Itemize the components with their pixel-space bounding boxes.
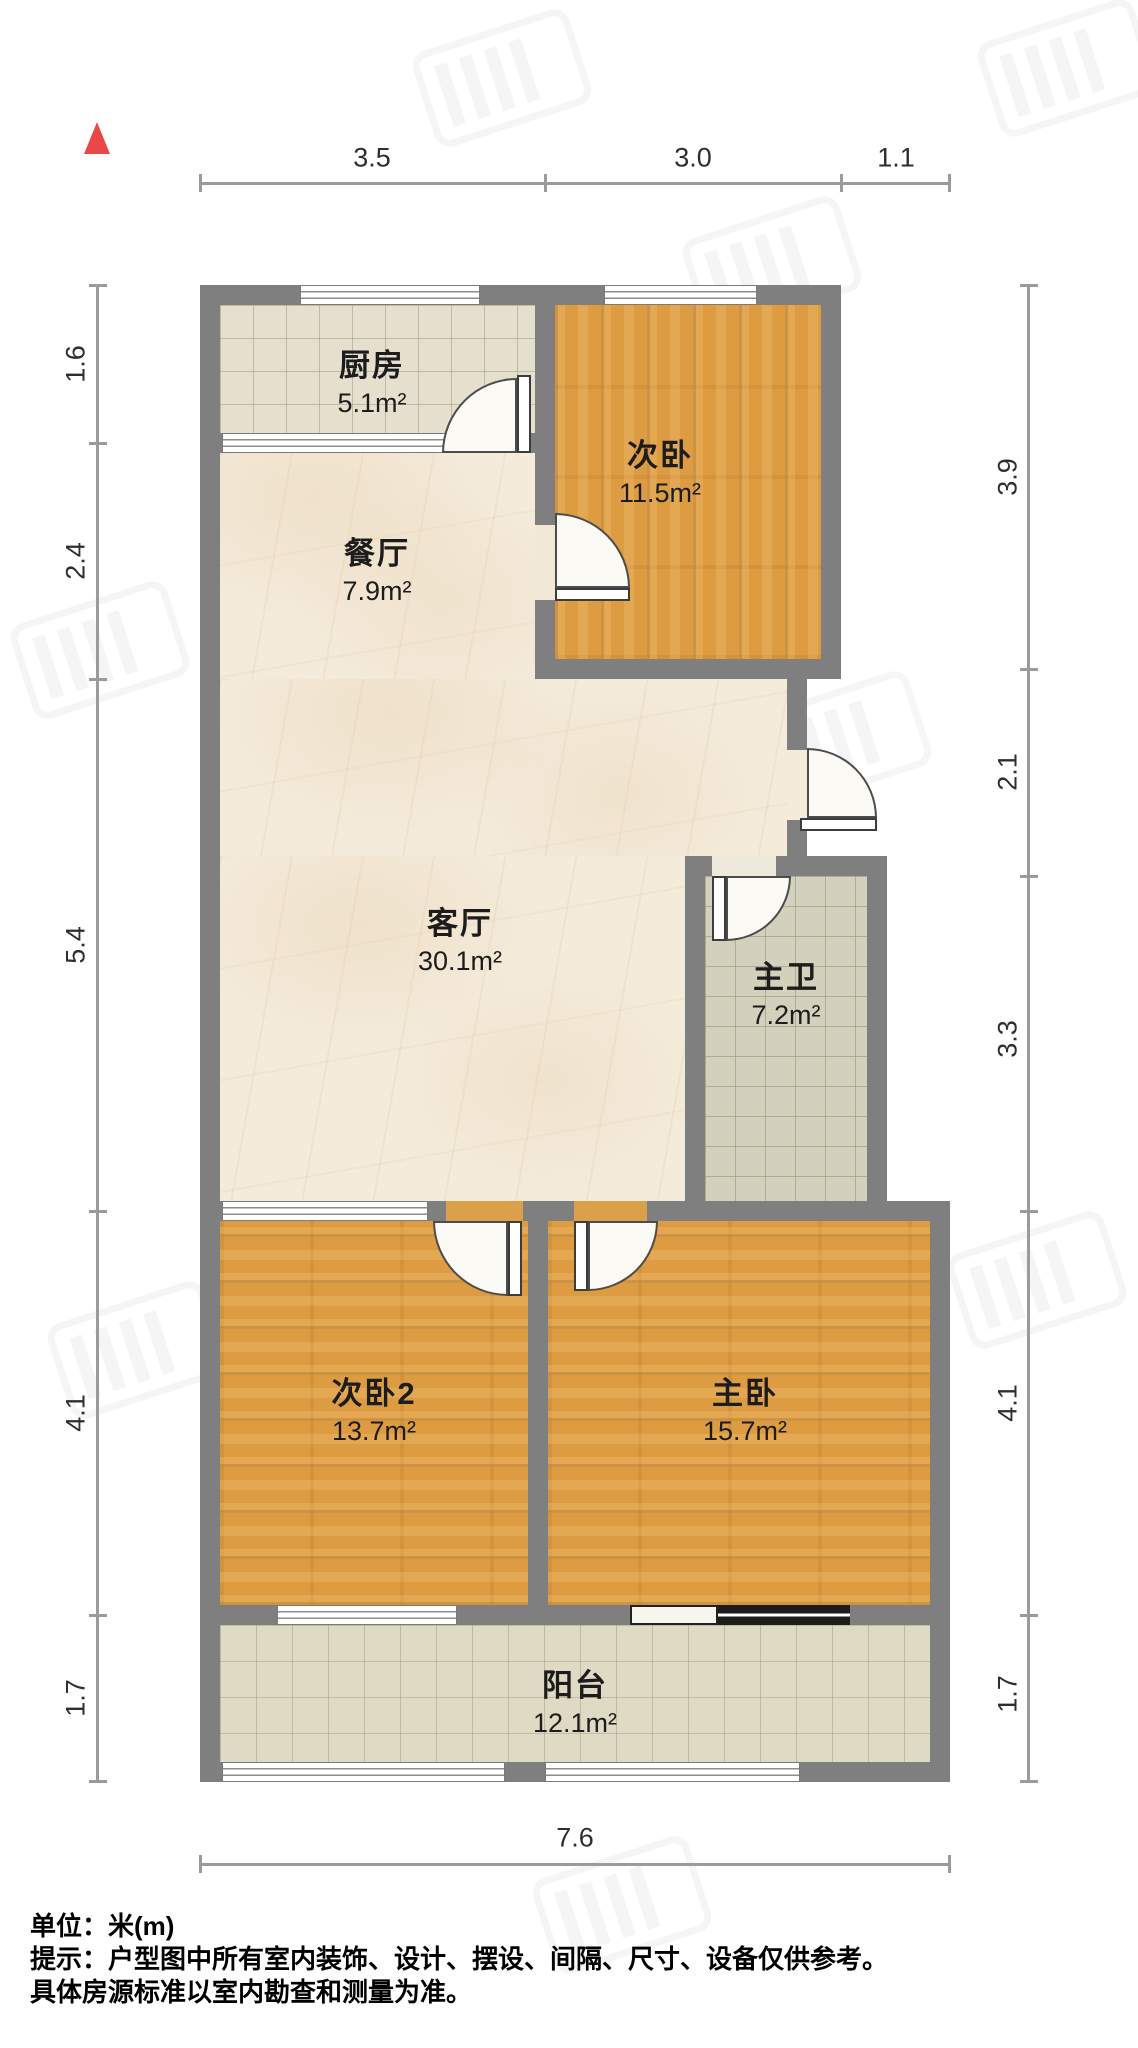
- dim-tick: [840, 174, 843, 192]
- living-floor-upper: [220, 679, 787, 856]
- dim-left-1: 1.6: [61, 345, 92, 383]
- dining-name: 餐厅: [342, 528, 411, 573]
- dining-area: 7.9m²: [342, 576, 411, 607]
- wall-bedroom-divider: [528, 1221, 548, 1605]
- room-label-bedroom3: 次卧2 13.7m²: [331, 1368, 416, 1447]
- dim-line-top: [200, 182, 950, 185]
- master-name: 主卧: [703, 1368, 787, 1413]
- bedroom3-door-leaf: [508, 1221, 522, 1296]
- opening-entrance: [787, 750, 807, 820]
- dim-left-5: 1.7: [61, 1679, 92, 1717]
- dim-tick: [1020, 1210, 1038, 1213]
- dim-tick: [199, 174, 202, 192]
- watermark-logo: [944, 1207, 1131, 1353]
- dim-right-1: 3.9: [993, 458, 1024, 496]
- bedroom3-area: 13.7m²: [331, 1416, 416, 1447]
- dim-left-4: 4.1: [61, 1394, 92, 1432]
- window-kitchen-top: [300, 285, 480, 305]
- dim-left-3: 5.4: [61, 926, 92, 964]
- window-living-partition: [222, 1201, 428, 1221]
- window-balcony-right: [545, 1762, 800, 1782]
- wall-bedroom2-west-upper: [535, 305, 555, 525]
- dim-tick: [544, 174, 547, 192]
- dim-line-right: [1027, 285, 1030, 1782]
- kitchen-name: 厨房: [337, 340, 406, 385]
- sill-master-balcony: [630, 1605, 718, 1625]
- dim-right-2: 2.1: [993, 753, 1024, 791]
- living-name: 客厅: [418, 898, 502, 943]
- bedroom2-area: 11.5m²: [619, 478, 701, 509]
- window-kitchen-pass: [222, 433, 460, 453]
- dim-right-3: 3.3: [993, 1020, 1024, 1058]
- living-area: 30.1m²: [418, 946, 502, 977]
- watermark-logo: [7, 577, 194, 723]
- dim-tick: [199, 1855, 202, 1873]
- dim-tick: [1020, 668, 1038, 671]
- room-label-living: 客厅 30.1m²: [418, 898, 502, 977]
- dim-tick: [1020, 1614, 1038, 1617]
- bedroom2-door-leaf: [555, 588, 630, 601]
- wall-entry-upper: [787, 679, 807, 750]
- dim-line-left: [96, 285, 99, 1782]
- dim-line-bottom: [200, 1863, 950, 1866]
- window-bedroom3-balcony: [277, 1605, 457, 1625]
- dim-right-4: 4.1: [993, 1384, 1024, 1422]
- kitchen-door-leaf: [517, 375, 531, 453]
- opening-master: [574, 1201, 647, 1221]
- dim-tick: [89, 1614, 107, 1617]
- dim-top-3: 1.1: [877, 143, 915, 174]
- opening-bedroom3: [446, 1201, 523, 1221]
- slider-master-balcony: [718, 1605, 850, 1625]
- dim-tick: [1020, 284, 1038, 287]
- room-label-dining: 餐厅 7.9m²: [342, 528, 411, 607]
- room-label-bathroom: 主卫 7.2m²: [751, 952, 820, 1031]
- floor-plan-page: 厨房 5.1m² 次卧 11.5m² 餐厅 7.9m² 客厅 30.1m² 主卫…: [0, 0, 1138, 2048]
- dim-tick: [948, 1855, 951, 1873]
- dim-bottom-1: 7.6: [556, 1823, 594, 1854]
- unit-note: 单位：米(m): [30, 1906, 174, 1943]
- dim-right-5: 1.7: [993, 1675, 1024, 1713]
- dim-top-2: 3.0: [674, 143, 712, 174]
- dim-top-1: 3.5: [353, 143, 391, 174]
- bathroom-area: 7.2m²: [751, 1000, 820, 1031]
- room-label-kitchen: 厨房 5.1m²: [337, 340, 406, 419]
- disclaimer-line2: 具体房源标准以室内勘查和测量为准。: [30, 1972, 472, 2009]
- dim-tick: [1020, 875, 1038, 878]
- opening-bedroom2: [535, 525, 555, 600]
- window-balcony-left: [222, 1762, 505, 1782]
- dim-tick: [89, 442, 107, 445]
- balcony-area: 12.1m²: [533, 1708, 617, 1739]
- wall-bathroom-west: [685, 876, 705, 1201]
- entrance-door-leaf: [800, 818, 877, 831]
- dim-left-2: 2.4: [61, 542, 92, 580]
- dim-tick: [89, 1210, 107, 1213]
- wall-bedroom2-east: [821, 285, 841, 679]
- watermark-logo: [974, 0, 1138, 141]
- room-label-bedroom2: 次卧 11.5m²: [619, 430, 701, 509]
- dim-tick: [89, 678, 107, 681]
- wall-bedroom2-west-lower: [535, 600, 555, 659]
- bedroom2-name: 次卧: [619, 430, 701, 475]
- bedroom3-name: 次卧2: [331, 1368, 416, 1413]
- dim-tick: [1020, 1780, 1038, 1783]
- wall-right: [930, 1201, 950, 1762]
- master-area: 15.7m²: [703, 1416, 787, 1447]
- wall-left: [200, 285, 220, 1782]
- room-label-balcony: 阳台 12.1m²: [533, 1660, 617, 1739]
- dim-tick: [89, 1780, 107, 1783]
- wall-bathroom-east: [867, 876, 887, 1201]
- north-arrow-icon: [84, 122, 110, 154]
- dim-tick: [89, 284, 107, 287]
- dim-tick: [948, 174, 951, 192]
- opening-bathroom: [712, 856, 776, 876]
- bathroom-name: 主卫: [751, 952, 820, 997]
- room-label-master: 主卧 15.7m²: [703, 1368, 787, 1447]
- window-bedroom2-top: [604, 285, 757, 305]
- watermark-logo: [409, 5, 596, 151]
- bathroom-door-leaf: [712, 876, 726, 941]
- master-door-leaf: [574, 1221, 588, 1291]
- disclaimer-line1: 提示：户型图中所有室内装饰、设计、摆设、间隔、尺寸、设备仅供参考。: [30, 1939, 888, 1976]
- balcony-name: 阳台: [533, 1660, 617, 1705]
- wall-bedroom2-south: [535, 659, 841, 679]
- kitchen-area: 5.1m²: [337, 388, 406, 419]
